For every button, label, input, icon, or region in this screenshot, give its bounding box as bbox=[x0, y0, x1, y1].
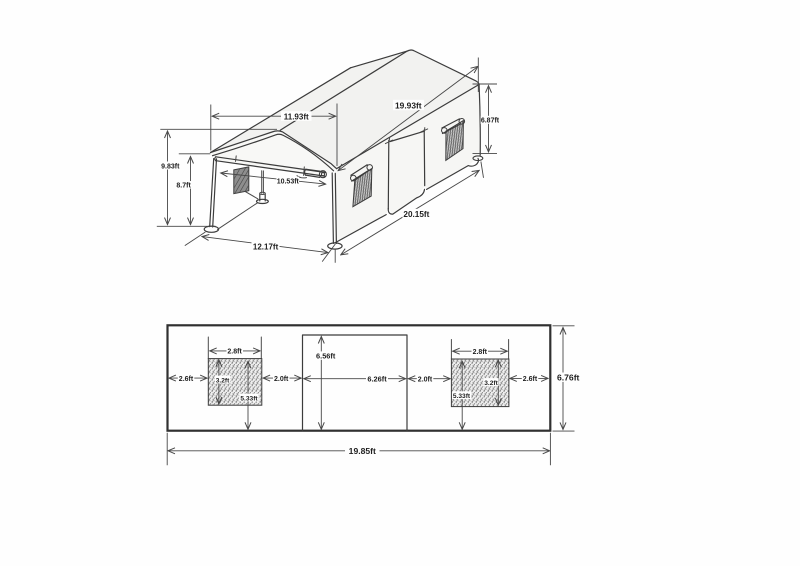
svg-text:2.0ft: 2.0ft bbox=[418, 377, 433, 384]
svg-text:3.2ft: 3.2ft bbox=[216, 377, 230, 384]
svg-text:2.6ft: 2.6ft bbox=[523, 376, 538, 383]
svg-text:6.26ft: 6.26ft bbox=[367, 375, 387, 384]
svg-text:2.8ft: 2.8ft bbox=[473, 349, 488, 356]
svg-text:9.83ft: 9.83ft bbox=[161, 163, 180, 170]
svg-text:19.85ft: 19.85ft bbox=[349, 446, 376, 456]
svg-text:5.33ft: 5.33ft bbox=[453, 393, 471, 400]
svg-text:2.6ft: 2.6ft bbox=[179, 376, 194, 383]
svg-text:12.17ft: 12.17ft bbox=[253, 243, 279, 252]
svg-text:3.2ft: 3.2ft bbox=[484, 380, 498, 387]
svg-text:8.7ft: 8.7ft bbox=[176, 182, 191, 189]
svg-text:6.56ft: 6.56ft bbox=[316, 352, 336, 361]
svg-text:10.53ft: 10.53ft bbox=[277, 178, 300, 185]
svg-text:2.8ft: 2.8ft bbox=[227, 349, 242, 356]
svg-text:2.0ft: 2.0ft bbox=[274, 376, 289, 383]
svg-text:20.15ft: 20.15ft bbox=[403, 210, 429, 219]
svg-text:5.33ft: 5.33ft bbox=[240, 395, 258, 402]
svg-text:6.87ft: 6.87ft bbox=[481, 118, 500, 125]
svg-text:19.93ft: 19.93ft bbox=[395, 100, 422, 110]
svg-text:11.93ft: 11.93ft bbox=[284, 112, 309, 121]
svg-text:6.76ft: 6.76ft bbox=[557, 373, 580, 383]
